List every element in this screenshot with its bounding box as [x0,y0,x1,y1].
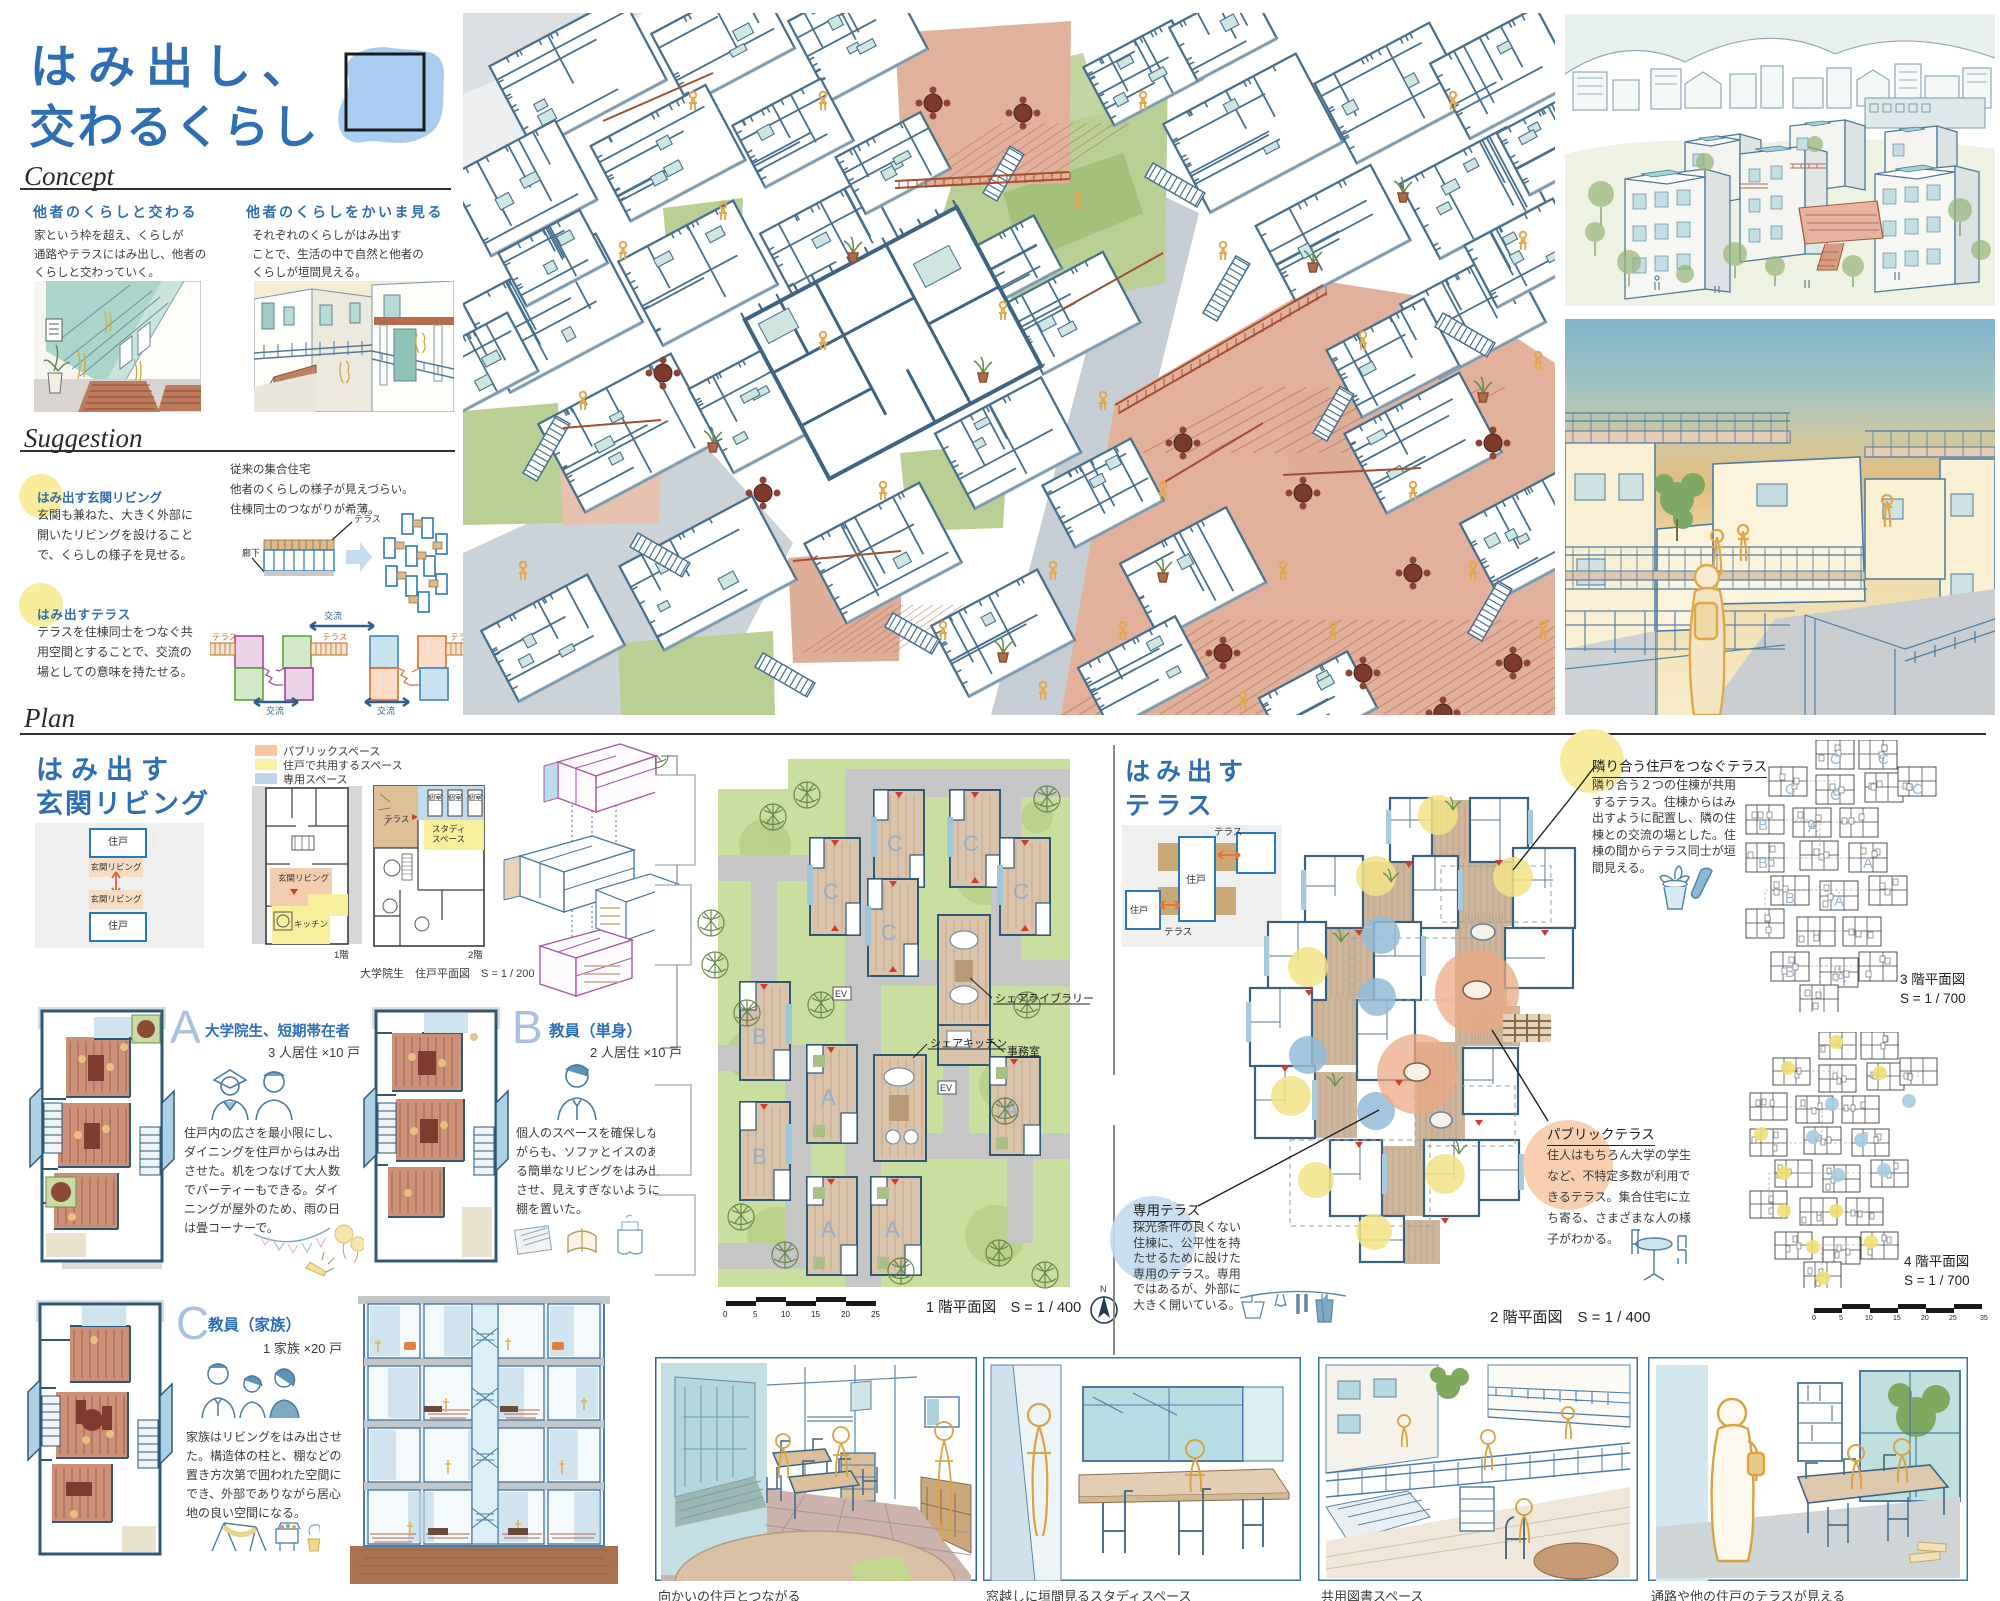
svg-text:10: 10 [781,1310,790,1319]
svg-text:A: A [821,1085,836,1110]
svg-text:20: 20 [1921,1315,1929,1322]
svg-text:事務室: 事務室 [1007,1044,1040,1058]
svg-text:A: A [1863,855,1873,872]
svg-text:10: 10 [1865,1315,1873,1322]
svg-text:交流: 交流 [377,705,395,716]
svg-text:20: 20 [841,1310,850,1319]
svg-text:B: B [1785,890,1795,907]
svg-text:C: C [1830,787,1841,804]
svg-text:15: 15 [811,1310,820,1319]
svg-text:C: C [1912,781,1923,798]
svg-text:キッチン: キッチン [294,919,328,929]
svg-text:5: 5 [753,1310,758,1319]
svg-text:スペース: スペース [432,834,465,844]
svg-text:B: B [1785,964,1795,981]
svg-text:25: 25 [871,1310,880,1319]
svg-text:2階: 2階 [468,950,483,961]
svg-text:25: 25 [1949,1315,1957,1322]
svg-text:0: 0 [723,1310,728,1319]
svg-text:テラス: テラス [384,814,409,824]
svg-text:テラス: テラス [1164,927,1192,938]
svg-text:シェアキッチン: シェアキッチン [930,1037,1007,1050]
svg-text:B: B [752,1024,767,1049]
svg-text:A: A [1836,969,1846,986]
svg-text:A: A [1808,819,1818,836]
svg-text:個室: 個室 [428,793,442,802]
svg-text:住戸: 住戸 [1130,904,1148,915]
svg-text:住戸: 住戸 [1186,873,1206,886]
svg-text:B: B [1758,817,1768,834]
svg-text:廊下: 廊下 [242,547,260,558]
svg-text:C: C [887,831,903,856]
svg-text:5: 5 [1839,1315,1843,1322]
svg-text:テラス: テラス [354,514,381,524]
svg-text:1階: 1階 [334,950,349,961]
svg-text:交流: 交流 [324,610,342,621]
svg-text:シェアライブラリー: シェアライブラリー [995,991,1094,1005]
svg-text:C: C [1785,781,1796,798]
svg-text:スタディ: スタディ [432,824,465,834]
svg-text:B: B [1758,855,1768,872]
svg-text:EV: EV [940,1083,952,1093]
svg-text:玄関リビング: 玄関リビング [278,873,330,883]
svg-text:0: 0 [1812,1315,1816,1322]
svg-text:N: N [1100,1284,1107,1294]
svg-text:15: 15 [1893,1315,1901,1322]
svg-text:テラス: テラス [322,632,347,642]
svg-text:個室: 個室 [468,793,482,802]
svg-text:個室: 個室 [448,793,462,802]
svg-text:交流: 交流 [266,705,284,716]
svg-text:35: 35 [1980,1315,1988,1322]
svg-text:テラス: テラス [212,632,237,642]
svg-text:テラス: テラス [1214,827,1242,838]
svg-text:C: C [1878,751,1889,768]
svg-text:A: A [1834,893,1844,910]
svg-text:EV: EV [835,989,847,999]
svg-text:C: C [1830,751,1841,768]
